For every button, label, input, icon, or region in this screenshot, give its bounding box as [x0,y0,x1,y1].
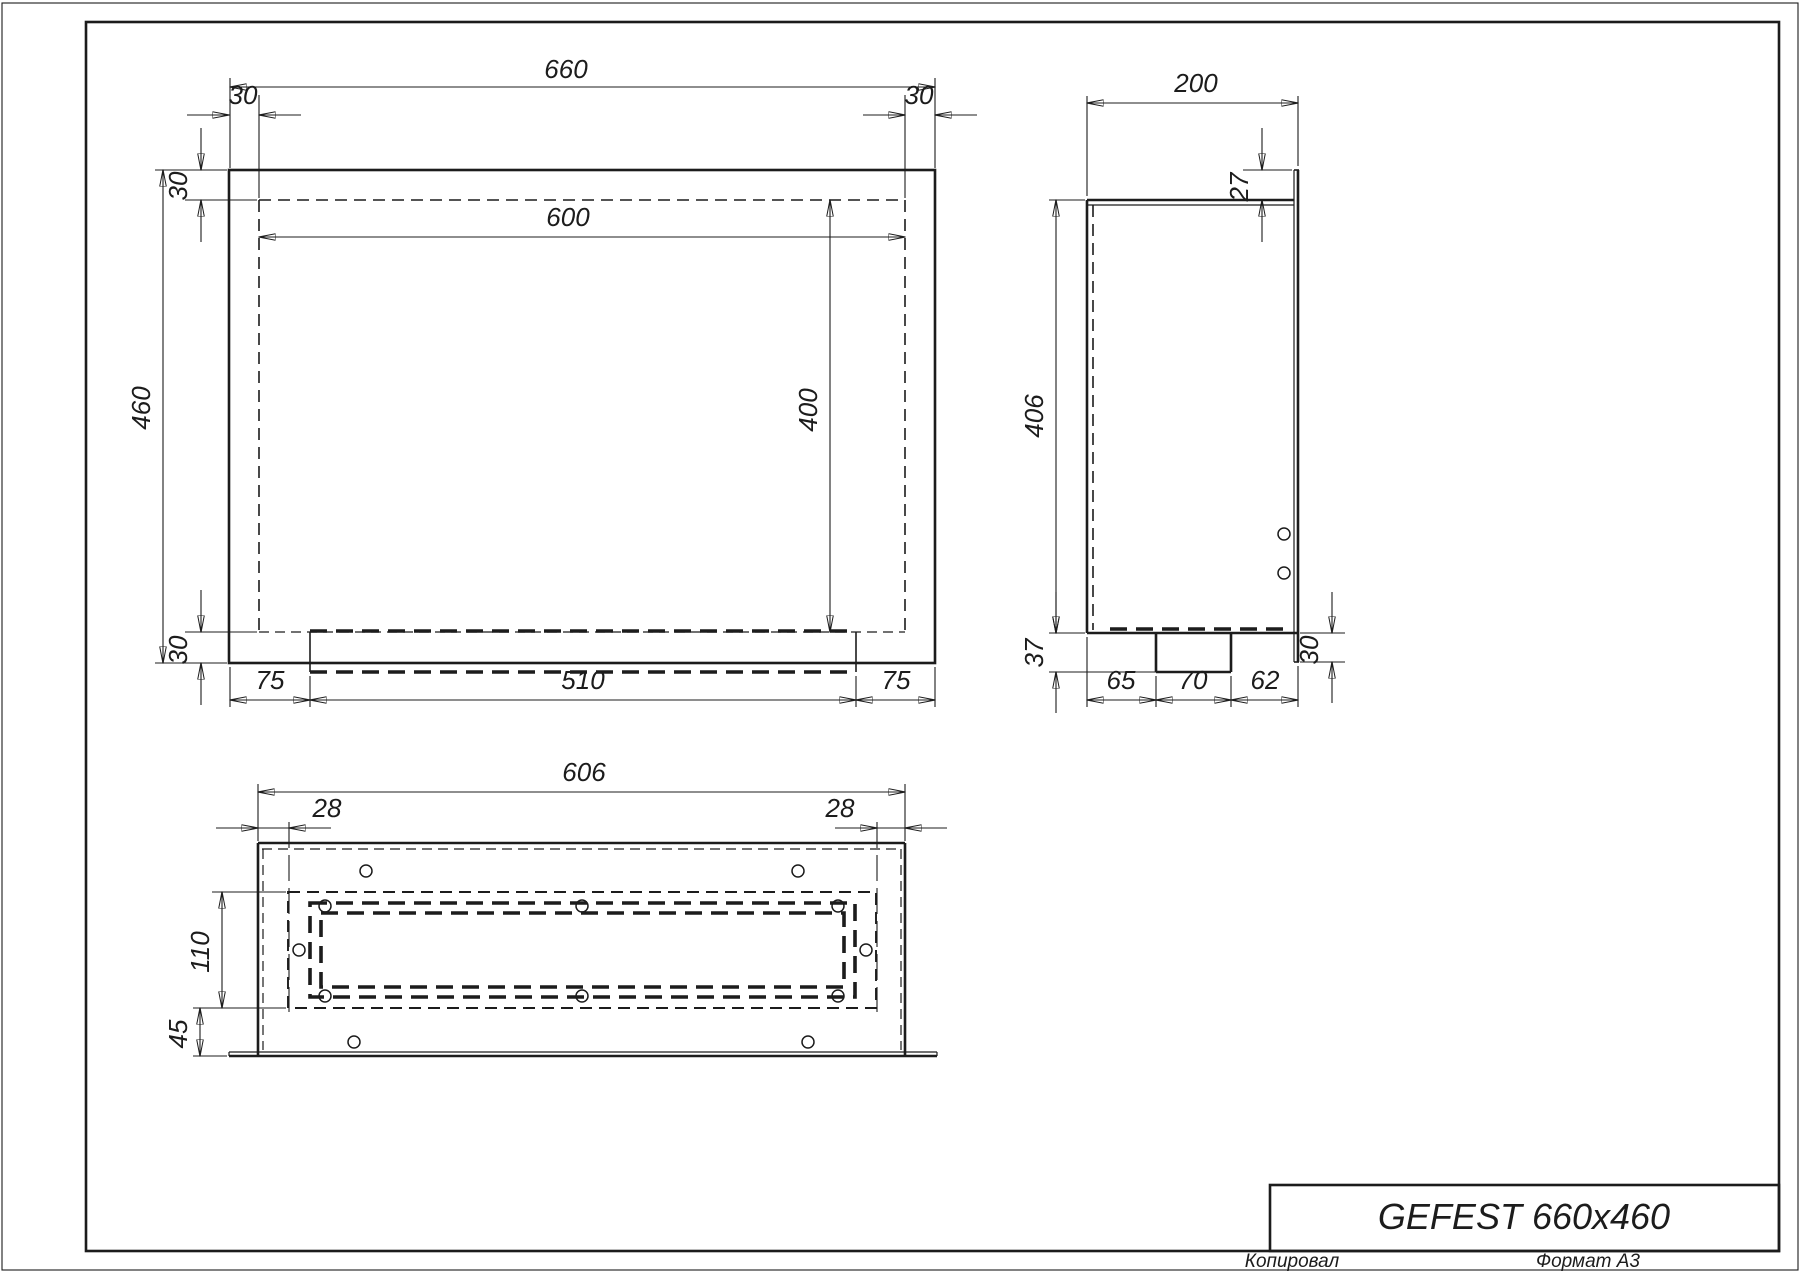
mounting-hole [802,1036,814,1048]
mounting-hole [348,1036,360,1048]
dim-side-tray-depth: 37 [1019,637,1049,667]
title-block: GEFEST 660x460 Копировал Формат A3 [1245,1185,1779,1272]
dim-side-tray-front-offset: 65 [1107,665,1136,695]
mounting-hole [293,944,305,956]
technical-drawing: 660 30 30 600 460 30 30 400 [0,0,1800,1273]
bottom-tray-outer [310,903,855,997]
copied-label: Копировал [1245,1251,1340,1272]
dim-bottom-width: 606 [562,757,606,787]
drawing-sheet: 660 30 30 600 460 30 30 400 [0,0,1800,1273]
dim-front-tray-width: 510 [561,665,605,695]
paper-border [2,3,1798,1270]
dim-front-inner-height: 400 [793,388,823,432]
front-outline [229,170,935,663]
dim-side-depth: 200 [1173,68,1218,98]
mounting-hole [1278,528,1290,540]
dim-bottom-side-inset-left: 28 [312,793,342,823]
dim-bottom-side-inset-right: 28 [825,793,855,823]
dim-front-inner-width: 600 [546,202,590,232]
dim-side-tray-back-offset: 62 [1251,665,1280,695]
frame-border [86,22,1779,1251]
dim-bottom-opening-height: 110 [185,931,215,973]
dim-front-tray-left-offset: 75 [256,665,285,695]
dim-front-overall-height: 460 [126,386,156,430]
dim-front-flange-right: 30 [905,80,934,110]
dim-front-tray-right-offset: 75 [882,665,911,695]
front-view: 660 30 30 600 460 30 30 400 [126,54,977,707]
dim-front-flange-left: 30 [229,80,258,110]
dim-side-tray-width: 70 [1179,665,1208,695]
dim-front-overall-width: 660 [544,54,588,84]
dim-side-front-lip: 27 [1224,171,1254,202]
mounting-hole [360,865,372,877]
dim-side-body-height: 406 [1019,394,1049,438]
drawing-frame [2,3,1798,1270]
dim-front-bottom-inset: 30 [163,635,193,664]
format-label: Формат A3 [1536,1251,1640,1272]
product-title: GEFEST 660x460 [1378,1196,1670,1237]
dim-side-lip-bottom: 30 [1294,635,1324,664]
bottom-tray-inner [321,913,844,987]
mounting-hole [860,944,872,956]
dim-front-top-inset: 30 [163,171,193,200]
side-view: 200 27 406 37 65 70 62 30 [1019,68,1345,713]
mounting-hole [1278,567,1290,579]
dim-bottom-front-strip: 45 [163,1019,193,1048]
mounting-hole [792,865,804,877]
bottom-view: 606 28 28 110 45 [163,757,947,1056]
